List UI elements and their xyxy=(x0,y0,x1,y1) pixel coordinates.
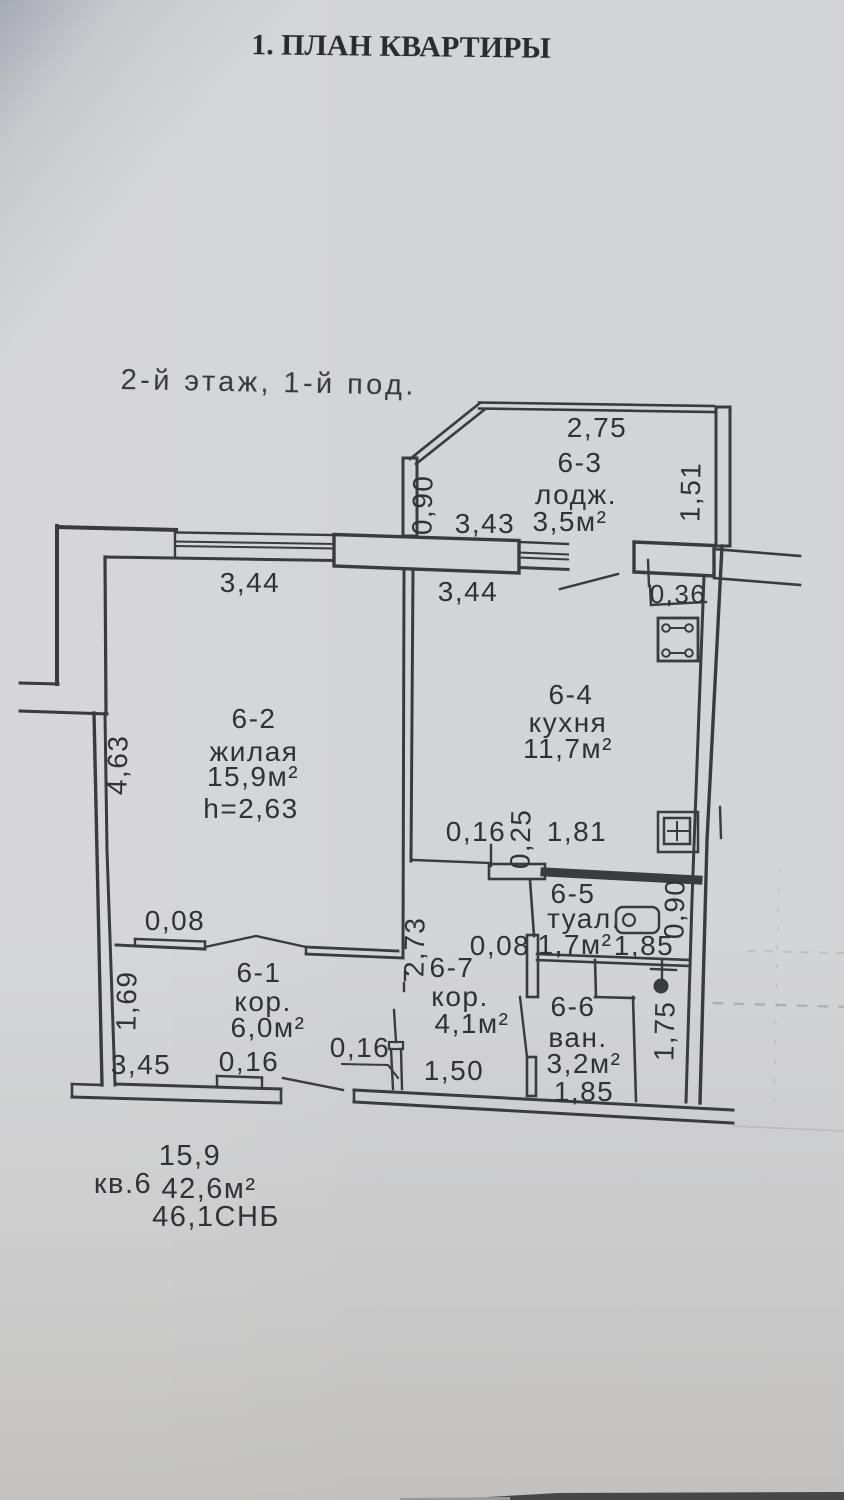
svg-text:0,90: 0,90 xyxy=(658,878,690,939)
svg-text:3,2м²: 3,2м² xyxy=(547,1048,622,1079)
svg-text:3,45: 3,45 xyxy=(111,1049,172,1080)
svg-text:11,7м²: 11,7м² xyxy=(523,733,613,764)
svg-text:15,9: 15,9 xyxy=(159,1140,221,1172)
svg-text:15,9м²: 15,9м² xyxy=(207,761,299,792)
svg-text:0,16: 0,16 xyxy=(446,816,507,847)
svg-text:2,73: 2,73 xyxy=(398,916,430,977)
svg-text:0,25: 0,25 xyxy=(504,808,536,869)
svg-text:1,75: 1,75 xyxy=(648,1000,680,1061)
svg-text:1,51: 1,51 xyxy=(674,461,706,522)
svg-text:4,63: 4,63 xyxy=(101,734,133,795)
svg-text:2,75: 2,75 xyxy=(567,412,628,443)
svg-text:3,43: 3,43 xyxy=(455,508,516,539)
svg-text:h=2,63: h=2,63 xyxy=(203,793,298,824)
svg-text:6-4: 6-4 xyxy=(549,679,594,710)
svg-text:1,81: 1,81 xyxy=(547,816,608,847)
svg-text:46,1СНБ: 46,1СНБ xyxy=(152,1201,280,1233)
svg-text:0,16: 0,16 xyxy=(330,1032,391,1063)
svg-text:6-1: 6-1 xyxy=(237,957,282,988)
svg-text:6-6: 6-6 xyxy=(551,991,596,1022)
svg-text:0,16: 0,16 xyxy=(219,1046,280,1077)
svg-text:3,5м²: 3,5м² xyxy=(533,506,608,537)
svg-text:0,08: 0,08 xyxy=(470,930,531,961)
svg-text:0,90: 0,90 xyxy=(406,474,438,535)
svg-text:кв.6: кв.6 xyxy=(94,1168,152,1200)
svg-text:6-2: 6-2 xyxy=(232,703,277,734)
svg-text:3,44: 3,44 xyxy=(220,567,281,598)
svg-text:1,85: 1,85 xyxy=(554,1076,615,1107)
svg-text:0,36: 0,36 xyxy=(650,579,707,609)
svg-text:1,69: 1,69 xyxy=(110,970,142,1031)
svg-text:6-7: 6-7 xyxy=(430,952,475,983)
svg-text:6-3: 6-3 xyxy=(558,447,603,478)
svg-text:0,08: 0,08 xyxy=(145,905,206,936)
svg-text:6,0м²: 6,0м² xyxy=(231,1012,306,1043)
svg-text:1,50: 1,50 xyxy=(424,1055,485,1086)
svg-text:1,7м²: 1,7м² xyxy=(538,929,613,960)
svg-text:4,1м²: 4,1м² xyxy=(435,1008,510,1039)
svg-text:3,44: 3,44 xyxy=(438,576,499,607)
